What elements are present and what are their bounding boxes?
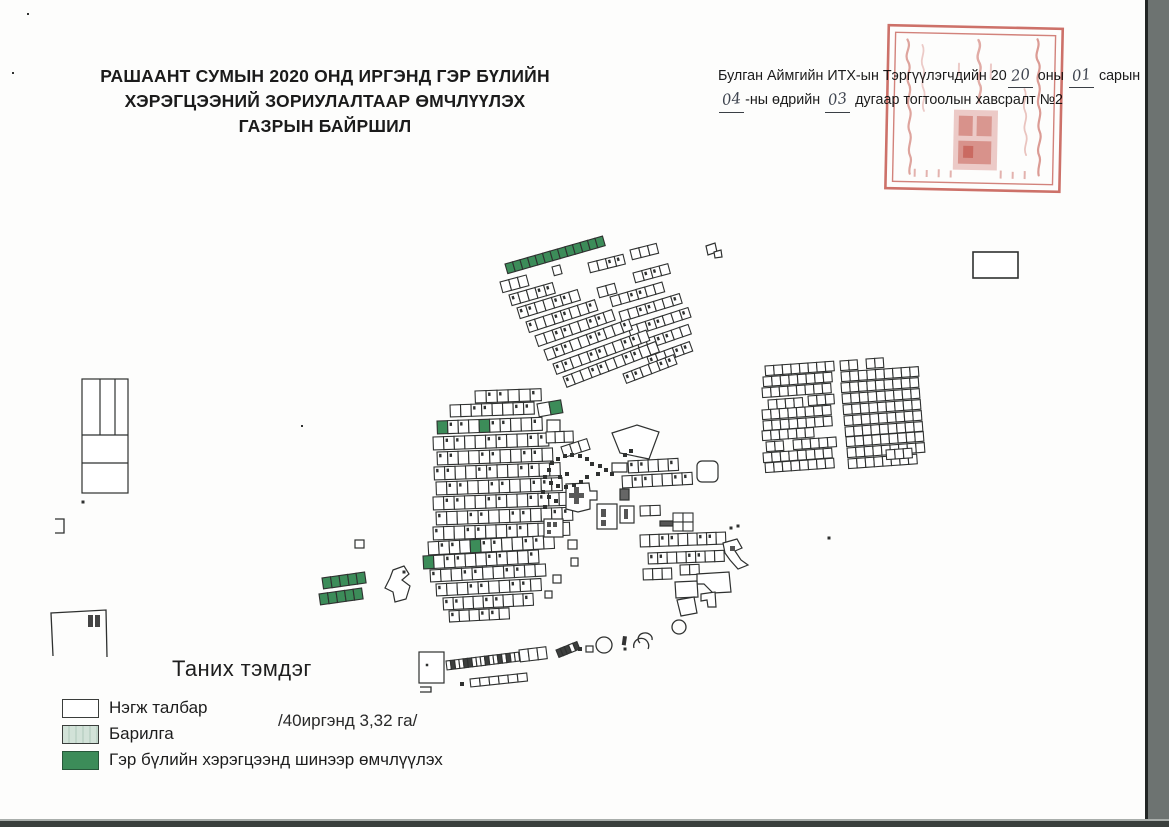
building-swatch — [62, 725, 99, 744]
legend-label-parcel: Нэгж талбар — [109, 698, 207, 718]
official-red-stamp — [882, 22, 1066, 201]
handwritten-decree-number: 03 — [825, 88, 850, 112]
annotation-text-4: -ны өдрийн — [745, 92, 824, 108]
stamp-graphic — [882, 22, 1066, 196]
scanner-background-right — [1145, 0, 1169, 827]
handwritten-month: 01 — [1069, 64, 1094, 88]
legend-title: Таних тэмдэг — [172, 656, 312, 682]
legend-item-new-ownership: Гэр бүлийн хэрэгцээнд шинээр өмчлүүлэх — [62, 750, 443, 770]
scanned-document-page: РАШААНТ СУМЫН 2020 ОНД ИРГЭНД ГЭР БҮЛИЙН… — [0, 0, 1169, 827]
new-ownership-swatch — [62, 751, 99, 770]
handwritten-day: 04 — [719, 88, 744, 112]
legend: Нэгж талбар Барилга Гэр бүлийн хэрэгцээн… — [62, 698, 443, 770]
legend-label-new-ownership: Гэр бүлийн хэрэгцээнд шинээр өмчлүүлэх — [109, 750, 443, 770]
area-note: /40иргэнд 3,32 га/ — [278, 711, 417, 731]
map-title: РАШААНТ СУМЫН 2020 ОНД ИРГЭНД ГЭР БҮЛИЙН… — [85, 64, 565, 139]
annotation-text-3: сарын — [1095, 68, 1140, 84]
scanner-background-bottom — [0, 819, 1169, 827]
legend-label-building: Барилга — [109, 724, 174, 744]
parcel-swatch — [62, 699, 99, 718]
